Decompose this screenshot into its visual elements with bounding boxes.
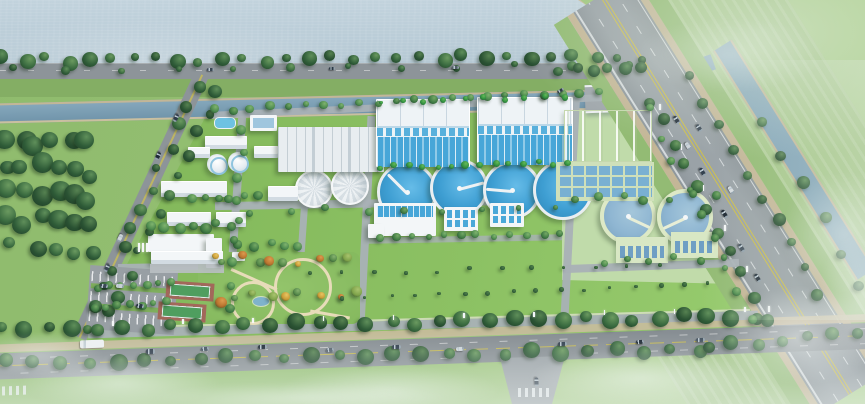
- car: [136, 304, 144, 309]
- bus: [80, 340, 104, 349]
- aerial-plant-rendering: [0, 0, 865, 404]
- car: [257, 345, 266, 349]
- car: [116, 284, 124, 289]
- car: [684, 142, 692, 151]
- car: [534, 377, 538, 386]
- car: [753, 273, 761, 283]
- car: [672, 115, 680, 125]
- car: [103, 264, 110, 273]
- car: [154, 152, 161, 161]
- car: [207, 68, 214, 71]
- car: [556, 87, 564, 93]
- car: [172, 114, 179, 123]
- car: [695, 338, 704, 342]
- car: [391, 345, 400, 349]
- car: [100, 284, 108, 289]
- vehicle-layer: [0, 0, 865, 404]
- car: [116, 234, 123, 243]
- car: [695, 124, 703, 133]
- car: [720, 209, 728, 219]
- car: [326, 348, 334, 352]
- car: [145, 349, 154, 354]
- car: [329, 67, 335, 70]
- car: [636, 340, 644, 344]
- car: [201, 347, 209, 351]
- car: [727, 186, 735, 195]
- car: [737, 243, 745, 253]
- car: [698, 167, 706, 177]
- car: [452, 66, 459, 69]
- car: [456, 347, 464, 351]
- car: [557, 342, 566, 346]
